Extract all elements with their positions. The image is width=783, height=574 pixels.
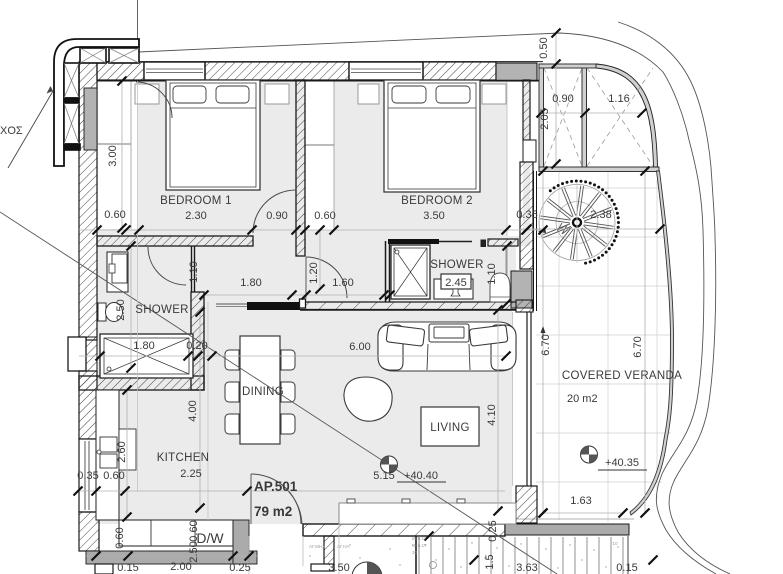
svg-text:4.10: 4.10 (486, 404, 498, 425)
svg-text:0.90: 0.90 (266, 210, 287, 222)
svg-text:B=0.27: B=0.27 (412, 536, 427, 541)
svg-text:U=0.17: U=0.17 (412, 543, 427, 548)
svg-text:BEDROOM 1: BEDROOM 1 (160, 195, 232, 207)
svg-text:2.50: 2.50 (115, 299, 127, 320)
svg-text:1.63: 1.63 (570, 495, 591, 507)
svg-text:20 m2: 20 m2 (567, 393, 598, 405)
svg-text:1.80: 1.80 (133, 340, 154, 352)
svg-text:79 m2: 79 m2 (254, 504, 292, 519)
svg-text:6.70: 6.70 (632, 336, 644, 357)
svg-text:+40.35: +40.35 (605, 457, 639, 469)
svg-text:0.50: 0.50 (538, 37, 550, 58)
svg-text:3.50: 3.50 (423, 210, 444, 222)
svg-text:2.30: 2.30 (185, 210, 206, 222)
svg-text:0.60: 0.60 (104, 209, 125, 221)
svg-text:5.15: 5.15 (373, 470, 394, 482)
svg-text:1.10: 1.10 (188, 261, 200, 282)
svg-text:2.60: 2.60 (116, 441, 128, 462)
svg-text:0.60: 0.60 (103, 470, 124, 482)
svg-text:+40.40: +40.40 (404, 470, 438, 482)
svg-text:ΧΟΣ: ΧΟΣ (0, 125, 23, 137)
svg-text:2.50: 2.50 (188, 541, 200, 562)
svg-text:1.20: 1.20 (308, 262, 320, 283)
svg-text:AP.501: AP.501 (254, 479, 298, 494)
svg-text:COVERED VERANDA: COVERED VERANDA (562, 370, 682, 382)
svg-text:0.25: 0.25 (229, 562, 250, 574)
svg-text:6.70: 6.70 (540, 334, 552, 355)
svg-text:LIVING: LIVING (430, 422, 470, 434)
svg-text:SHOWER: SHOWER (430, 259, 484, 271)
svg-text:ΑΓ.ΗΑ: ΑΓ.ΗΑ (337, 544, 350, 549)
svg-text:ΑΓ.ΜΗΧ: ΑΓ.ΜΗΧ (309, 544, 325, 549)
svg-text:1.5: 1.5 (484, 554, 496, 569)
svg-text:1.10: 1.10 (486, 263, 498, 284)
svg-text:0.15: 0.15 (616, 562, 637, 574)
svg-text:0.25: 0.25 (487, 520, 499, 541)
svg-text:2.45: 2.45 (445, 277, 466, 289)
svg-text:0.20: 0.20 (186, 340, 207, 352)
svg-text:2.00: 2.00 (170, 561, 191, 573)
svg-text:0.90: 0.90 (552, 93, 573, 105)
svg-text:D/W: D/W (196, 530, 224, 546)
svg-text:1.60: 1.60 (332, 277, 353, 289)
svg-text:0.35: 0.35 (77, 470, 98, 482)
svg-text:0.60: 0.60 (314, 210, 335, 222)
svg-text:6.00: 6.00 (349, 341, 370, 353)
svg-text:3.00: 3.00 (107, 145, 119, 166)
svg-text:4.00: 4.00 (187, 400, 199, 421)
svg-text:0.15: 0.15 (117, 562, 138, 574)
svg-text:3.63: 3.63 (516, 562, 537, 574)
svg-text:1.80: 1.80 (240, 277, 261, 289)
svg-text:BEDROOM 2: BEDROOM 2 (401, 195, 473, 207)
svg-text:2.38: 2.38 (590, 209, 611, 221)
svg-text:0.60: 0.60 (114, 527, 126, 548)
svg-text:KITCHEN: KITCHEN (157, 452, 210, 464)
svg-text:0.35: 0.35 (516, 209, 537, 221)
svg-text:2.25: 2.25 (180, 468, 201, 480)
svg-text:-10: -10 (611, 541, 618, 546)
svg-text:3.50: 3.50 (328, 562, 349, 574)
svg-text:20: 20 (412, 550, 418, 555)
svg-text:0.60: 0.60 (188, 520, 200, 541)
svg-text:SHOWER: SHOWER (135, 304, 189, 316)
svg-text:DINING: DINING (242, 386, 284, 398)
svg-text:2.05: 2.05 (539, 108, 551, 129)
svg-text:1.16: 1.16 (608, 93, 629, 105)
